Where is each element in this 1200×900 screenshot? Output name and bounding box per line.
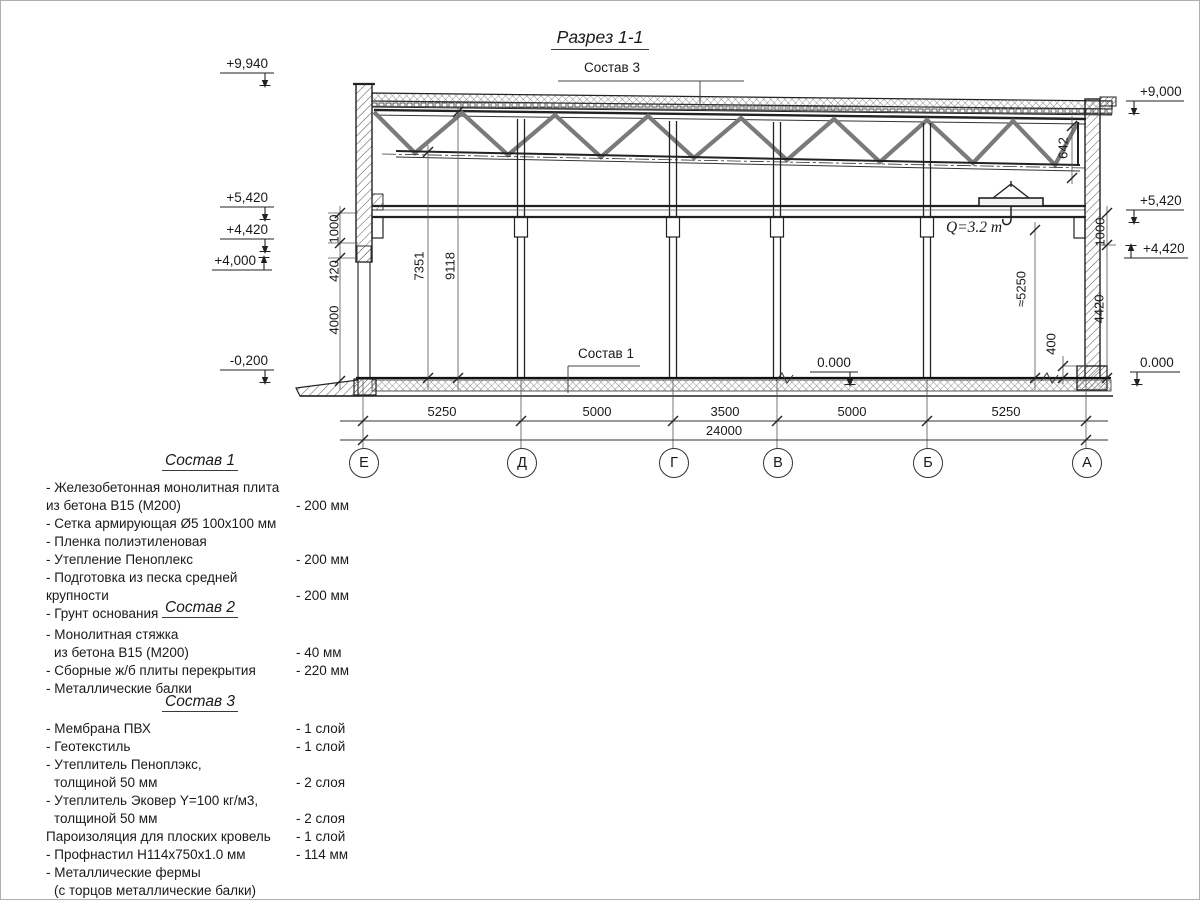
dim-5250-crane: ≈5250 <box>1014 271 1029 307</box>
dim-span-4: 5000 <box>812 405 892 418</box>
list-item: - Железобетонная монолитная плитаиз бето… <box>46 479 354 515</box>
dim-total-span: 24000 <box>684 424 764 437</box>
list-item-value: - 114 мм <box>292 846 354 864</box>
elevation-left-4000: +4,000 <box>194 254 256 267</box>
dim-9118: 9118 <box>443 252 458 280</box>
sostav3-leader-label: Состав 3 <box>584 61 640 74</box>
dim-4000-left: 4000 <box>327 306 342 335</box>
dim-420-left: 420 <box>327 260 342 282</box>
dim-span-3: 3500 <box>685 405 765 418</box>
axis-bubble-D: Д <box>507 448 537 478</box>
dim-1000-left: 1000 <box>327 215 342 244</box>
axis-bubble-V: В <box>763 448 793 478</box>
dim-span-5: 5250 <box>966 405 1046 418</box>
elevation-left-5420: +5,420 <box>202 191 268 204</box>
composition-3-title: Состав 3 <box>162 693 238 712</box>
axis-bubble-G: Г <box>659 448 689 478</box>
crane-capacity-label: Q=3.2 т <box>946 219 1002 237</box>
list-item-value: - 1 слой <box>292 738 354 756</box>
elevation-right-4420: +4,420 <box>1143 242 1185 255</box>
list-item-value: - 220 мм <box>292 662 354 680</box>
composition-list-1: Состав 1 - Железобетонная монолитная пли… <box>46 452 354 623</box>
roof-truss <box>374 110 1086 171</box>
axis-bubble-B: Б <box>913 448 943 478</box>
elevation-left-4420: +4,420 <box>202 223 268 236</box>
dim-span-2: 5000 <box>557 405 637 418</box>
composition-list-3: Состав 3 - Мембрана ПВХ - 1 слой - Геоте… <box>46 693 354 900</box>
dim-span-1: 5250 <box>402 405 482 418</box>
elevation-left-9940: +9,940 <box>202 57 268 70</box>
list-item-value: - 1 слой <box>292 720 354 738</box>
composition-list-2: Состав 2 - Монолитная стяжкаиз бетона В1… <box>46 599 354 698</box>
list-item: - Металлические фермы(с торцов металличе… <box>46 864 354 900</box>
dim-1000-right: 1000 <box>1093 218 1108 247</box>
list-item: - Геотекстиль - 1 слой <box>46 738 354 756</box>
list-item-value: - 1 слой <box>292 828 354 846</box>
crane-runway-beam <box>372 206 1086 217</box>
list-item: - Монолитная стяжкаиз бетона В15 (М200) … <box>46 626 354 662</box>
axis-bubble-A: А <box>1072 448 1102 478</box>
dim-7351: 7351 <box>412 252 427 281</box>
list-item: - Мембрана ПВХ - 1 слой <box>46 720 354 738</box>
list-item-value: - 40 мм <box>292 644 354 662</box>
list-item: - Утепление Пеноплекс - 200 мм <box>46 551 354 569</box>
list-item: - Профнастил Н114х750х1.0 мм - 114 мм <box>46 846 354 864</box>
floor-slab <box>296 373 1113 396</box>
elevation-floor-0000: 0.000 <box>810 356 858 369</box>
sostav1-leader-label: Состав 1 <box>578 347 634 360</box>
list-item-value: - 200 мм <box>292 497 354 515</box>
drawing-sheet: { "title": "Разрез 1-1", "section": { "l… <box>0 0 1200 900</box>
elevation-right-9000: +9,000 <box>1140 85 1182 98</box>
elevation-right-0000: 0.000 <box>1140 356 1174 369</box>
dim-400: 400 <box>1044 333 1059 355</box>
list-item-value: - 2 слоя <box>292 810 354 828</box>
vertical-dimension-lines <box>328 107 1116 390</box>
drawing-title: Разрез 1-1 <box>0 27 1200 48</box>
list-item: - Сборные ж/б плиты перекрытия - 220 мм <box>46 662 354 680</box>
dim-4420: 4420 <box>1092 295 1107 324</box>
list-item: - Утеплитель Эковер Y=100 кг/м3,толщиной… <box>46 792 354 828</box>
list-item: - Сетка армирующая Ø5 100х100 мм <box>46 515 354 533</box>
composition-1-title: Состав 1 <box>162 452 238 471</box>
elevation-left-0200: -0,200 <box>202 354 268 367</box>
list-item: - Утеплитель Пеноплэкс,толщиной 50 мм - … <box>46 756 354 792</box>
elevation-right-5420: +5,420 <box>1140 194 1182 207</box>
list-item-value: - 2 слоя <box>292 774 354 792</box>
list-item: - Пленка полиэтиленовая <box>46 533 354 551</box>
composition-2-title: Состав 2 <box>162 599 238 618</box>
list-item-value: - 200 мм <box>292 551 354 569</box>
list-item: Пароизоляция для плоских кровель - 1 сло… <box>46 828 354 846</box>
dim-642: 642 <box>1056 137 1071 159</box>
